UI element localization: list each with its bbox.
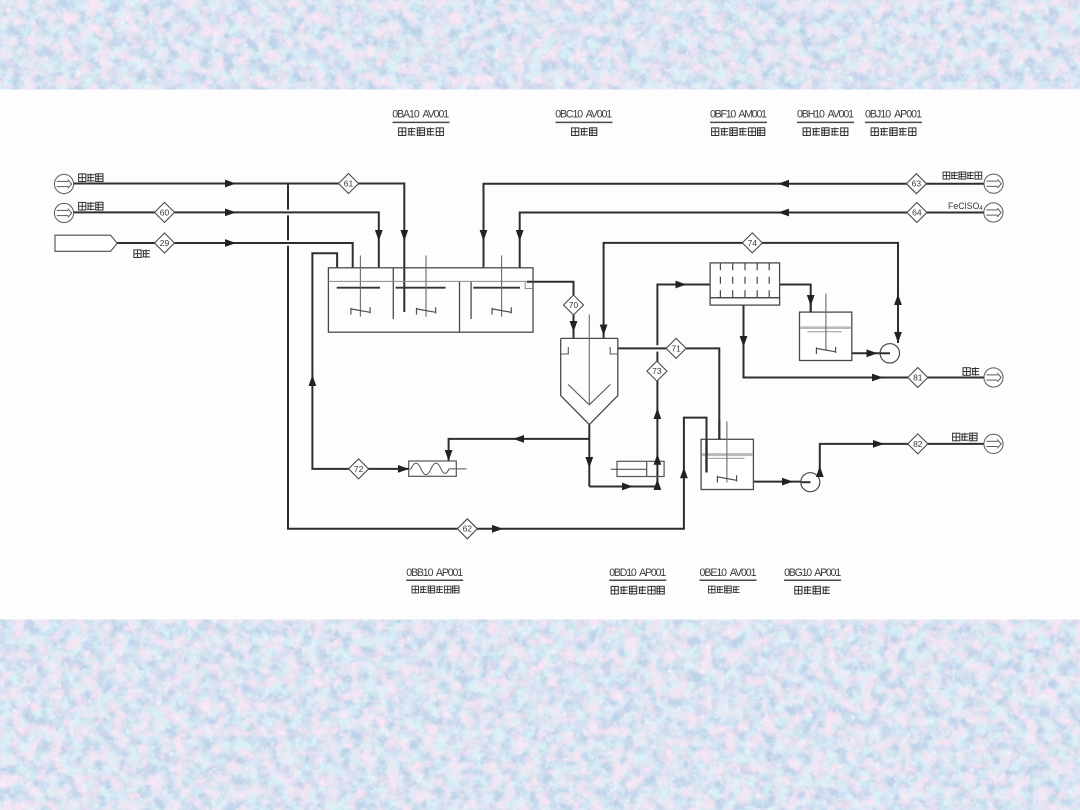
svg-text:0BB10 AP001: 0BB10 AP001 xyxy=(406,567,463,579)
svg-text:82: 82 xyxy=(913,439,923,449)
svg-text:63: 63 xyxy=(912,179,922,189)
svg-text:70: 70 xyxy=(569,300,579,310)
svg-text:64: 64 xyxy=(912,207,922,217)
svg-text:0BE10 AV001: 0BE10 AV001 xyxy=(700,567,757,579)
svg-text:0BF10 AM001: 0BF10 AM001 xyxy=(710,108,767,120)
svg-text:62: 62 xyxy=(463,524,473,534)
svg-text:0BJ10 AP001: 0BJ10 AP001 xyxy=(865,108,922,120)
svg-text:61: 61 xyxy=(344,178,354,188)
svg-text:73: 73 xyxy=(652,366,662,376)
svg-text:60: 60 xyxy=(160,207,170,217)
svg-text:81: 81 xyxy=(913,372,923,382)
svg-text:74: 74 xyxy=(748,238,758,248)
svg-text:0BH10 AV001: 0BH10 AV001 xyxy=(797,108,854,120)
svg-text:0BA10 AV001: 0BA10 AV001 xyxy=(392,108,449,120)
svg-text:29: 29 xyxy=(160,238,170,248)
svg-text:0BD10 AP001: 0BD10 AP001 xyxy=(609,567,666,579)
svg-text:72: 72 xyxy=(354,464,364,474)
svg-text:FeClSO4: FeClSO4 xyxy=(948,201,983,212)
svg-text:71: 71 xyxy=(671,343,681,353)
svg-text:0BC10 AV001: 0BC10 AV001 xyxy=(555,108,612,120)
svg-text:0BG10 AP001: 0BG10 AP001 xyxy=(784,567,841,579)
